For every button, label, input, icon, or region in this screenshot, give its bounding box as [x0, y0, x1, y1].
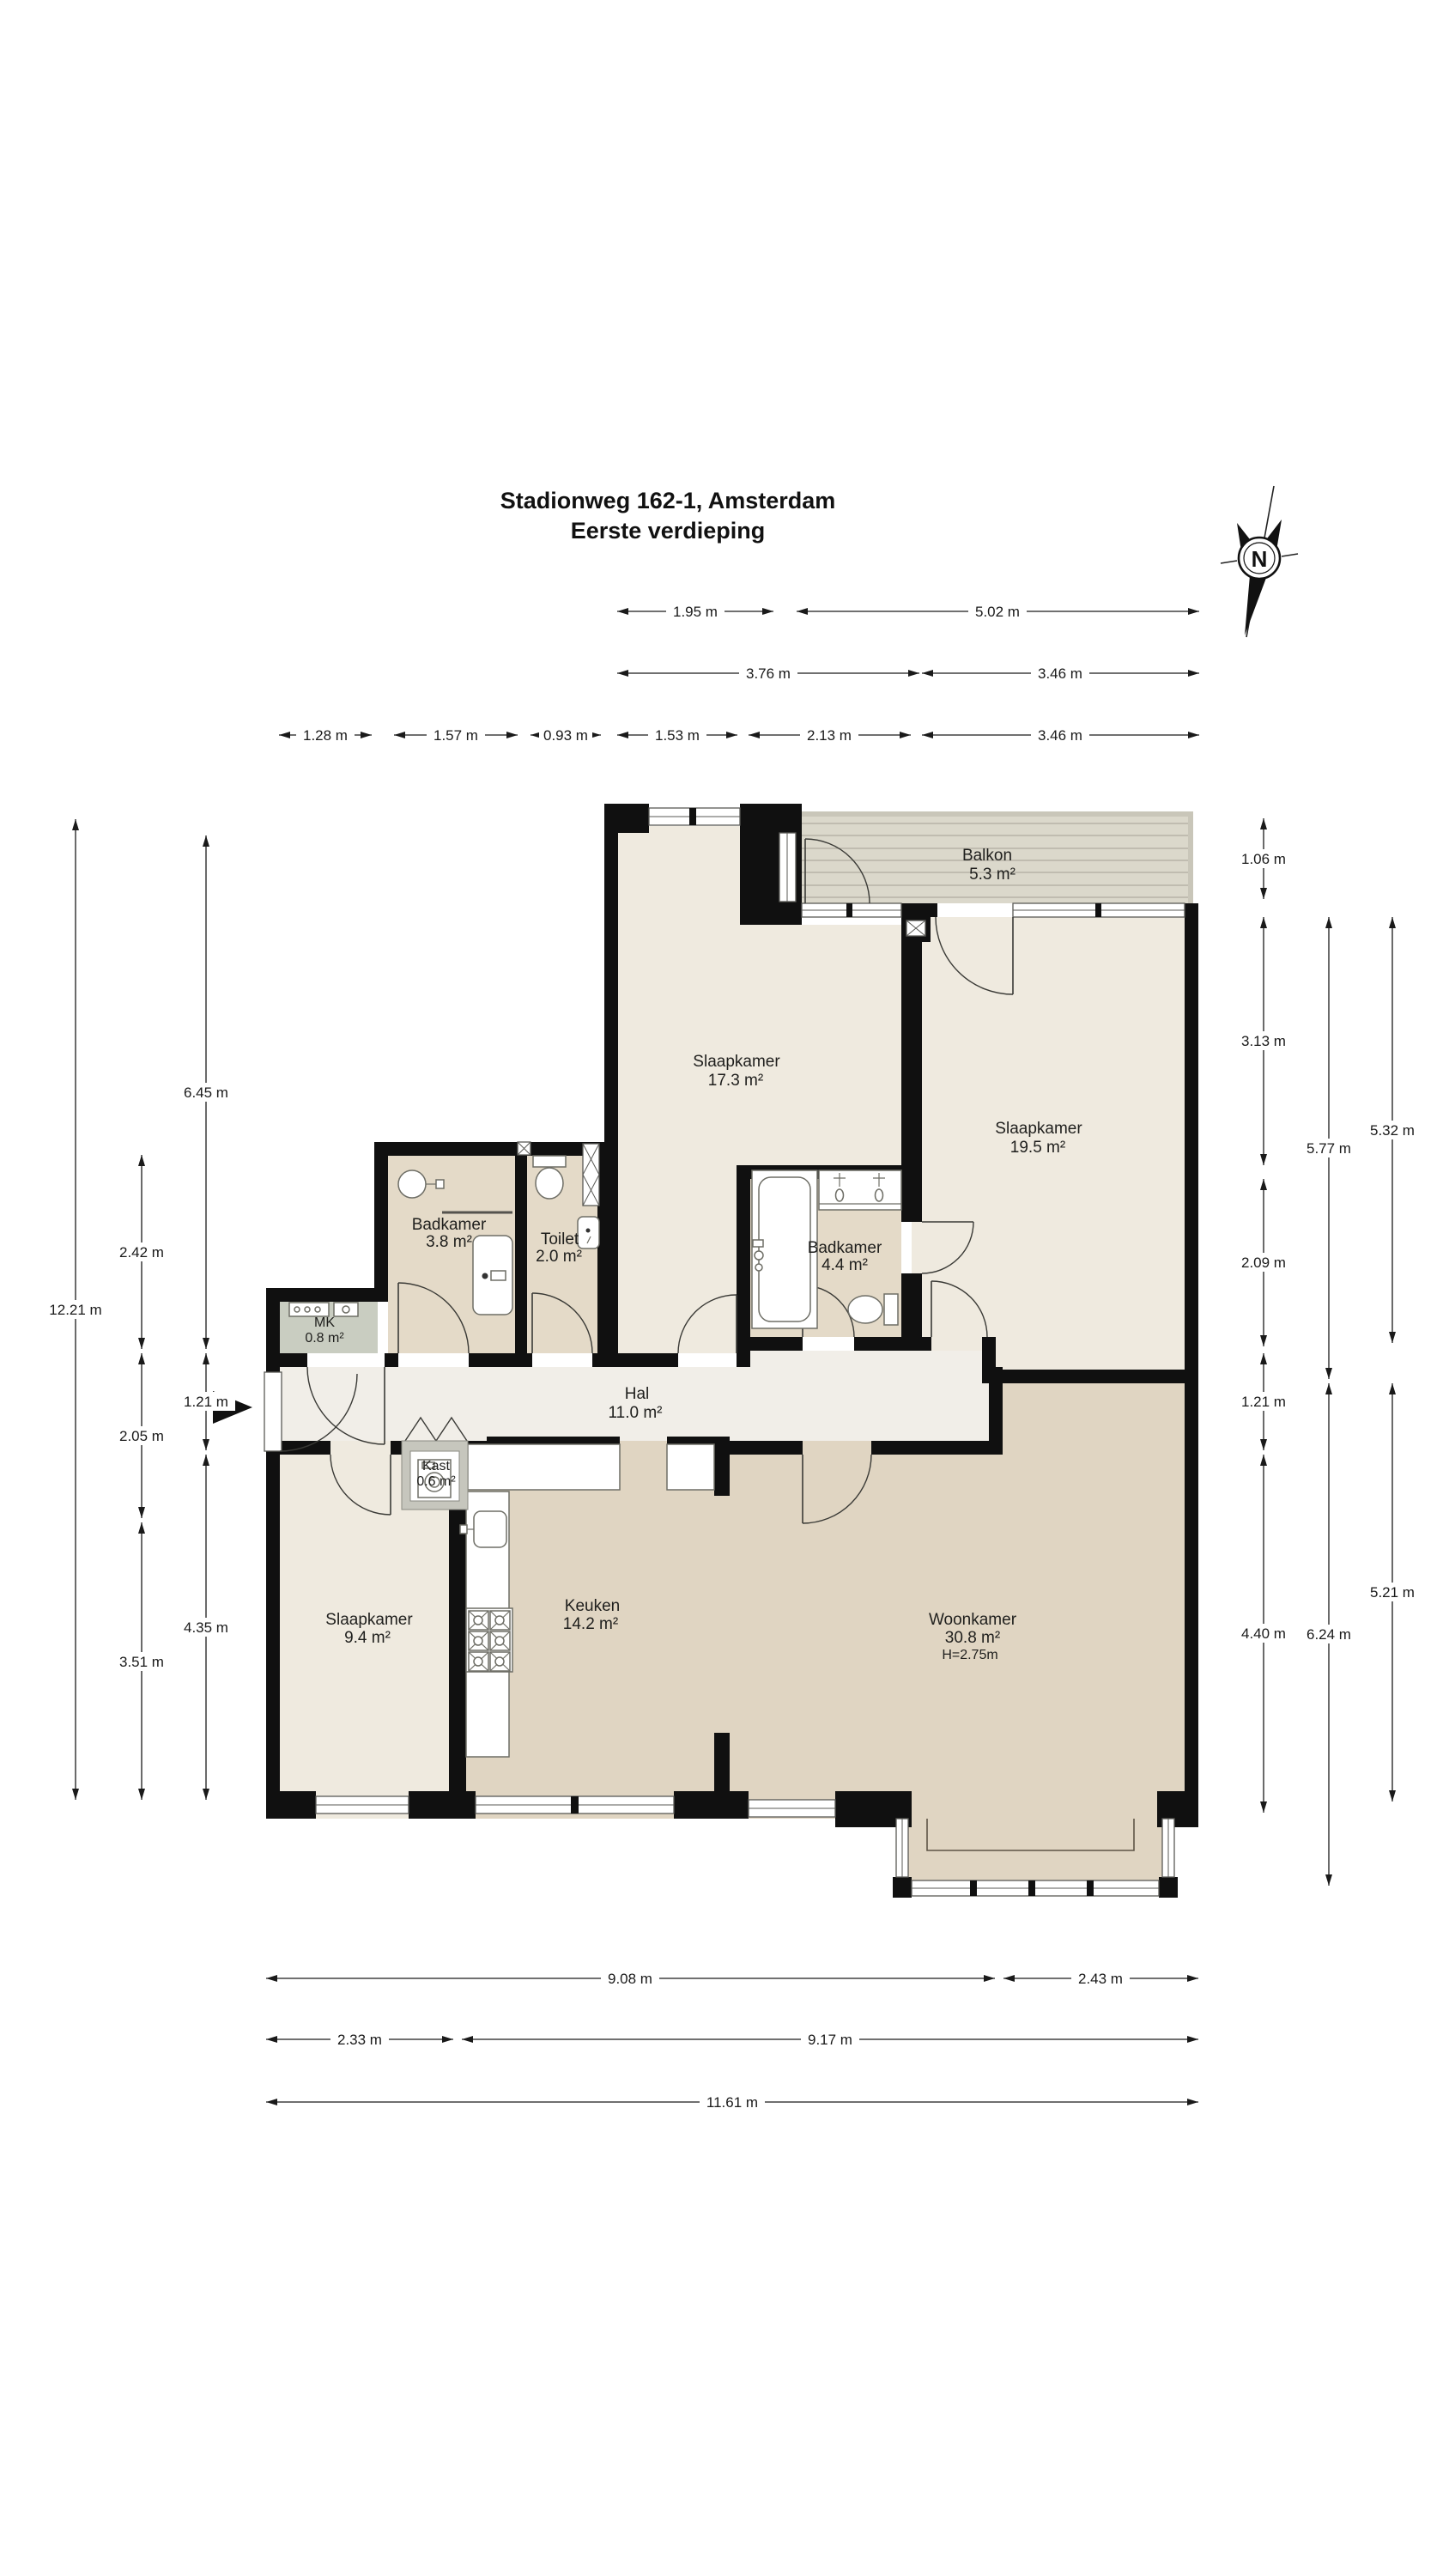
label-toilet-area: 2.0 m² [536, 1248, 582, 1266]
dim-right: 5.21 m [1363, 1383, 1422, 1801]
title-block: Stadionweg 162-1, Amsterdam Eerste verdi… [500, 488, 836, 544]
dim-top: 1.95 m [617, 602, 773, 621]
shower-icon [473, 1236, 512, 1315]
svg-text:6.45 m: 6.45 m [184, 1084, 228, 1101]
svg-text:0.93 m: 0.93 m [543, 727, 588, 744]
label-badkamer1-area: 3.8 m² [426, 1233, 472, 1251]
window-balkon-rail-right [1013, 903, 1185, 917]
compass-north-label: N [1252, 546, 1268, 572]
dim-left: 3.51 m [112, 1522, 171, 1800]
toilet-icon [533, 1156, 566, 1199]
dim-bottom: 2.33 m [266, 2030, 453, 2049]
page-subtitle: Eerste verdieping [571, 518, 766, 544]
label-mk-area: 0.8 m² [305, 1331, 344, 1346]
svg-text:6.24 m: 6.24 m [1307, 1626, 1351, 1643]
toilet2-icon [848, 1294, 898, 1325]
dim-left: 12.21 m [43, 819, 108, 1800]
dim-top: 2.13 m [749, 726, 911, 744]
dim-right: 1.06 m [1234, 818, 1293, 899]
dim-right: 1.21 m [1234, 1353, 1293, 1450]
label-slaapkamer2: Slaapkamer [995, 1120, 1082, 1138]
label-hal-area: 11.0 m² [608, 1404, 662, 1422]
svg-text:1.21 m: 1.21 m [184, 1394, 228, 1410]
dimensions-top: 1.95 m 5.02 m 3.76 m 3.46 m 1.28 m 1.57 … [279, 602, 1199, 744]
svg-text:2.09 m: 2.09 m [1241, 1255, 1286, 1271]
double-washbasin-icon [819, 1170, 901, 1210]
dim-top: 3.46 m [922, 664, 1199, 683]
window-slaapkamer1-balkon [779, 833, 796, 902]
svg-text:4.40 m: 4.40 m [1241, 1625, 1286, 1642]
svg-text:3.46 m: 3.46 m [1038, 727, 1082, 744]
page-title: Stadionweg 162-1, Amsterdam [500, 488, 836, 513]
label-badkamer1: Badkamer [412, 1216, 487, 1234]
dim-right: 5.77 m [1300, 917, 1358, 1379]
svg-text:2.43 m: 2.43 m [1078, 1971, 1123, 1987]
label-balkon-area: 5.3 m² [969, 866, 1016, 884]
dim-left: 4.35 m [177, 1455, 235, 1800]
window-slaapkamer3-bottom [316, 1796, 409, 1814]
label-hal: Hal [625, 1385, 650, 1403]
dim-left: 6.45 m [177, 835, 235, 1349]
svg-text:5.77 m: 5.77 m [1307, 1140, 1351, 1157]
svg-text:2.33 m: 2.33 m [337, 2032, 382, 2048]
dim-bottom: 11.61 m [266, 2093, 1198, 2111]
svg-text:1.53 m: 1.53 m [655, 727, 700, 744]
svg-text:3.46 m: 3.46 m [1038, 665, 1082, 682]
svg-text:5.21 m: 5.21 m [1370, 1584, 1415, 1601]
stove-icon [466, 1608, 512, 1672]
label-woonkamer-area: 30.8 m² [945, 1629, 1000, 1647]
dim-left: 2.42 m [112, 1155, 171, 1349]
dim-right: 2.09 m [1234, 1179, 1293, 1346]
dim-bottom: 9.08 m [266, 1969, 995, 1988]
svg-text:9.08 m: 9.08 m [608, 1971, 652, 1987]
svg-text:12.21 m: 12.21 m [49, 1302, 101, 1318]
label-badkamer2-area: 4.4 m² [822, 1256, 868, 1274]
dim-left: 2.05 m [112, 1353, 171, 1518]
dimensions-left: 12.21 m 2.42 m 2.05 m 3.51 m 6.45 m 1.21… [43, 819, 235, 1800]
balkon-right-rail [1188, 811, 1193, 917]
label-toilet: Toilet [541, 1230, 579, 1249]
compass-icon: N [1221, 486, 1298, 637]
dimensions-bottom: 9.08 m 2.43 m 2.33 m 9.17 m 11.61 m [266, 1969, 1198, 2111]
label-mk: MK [314, 1315, 335, 1330]
svg-text:2.13 m: 2.13 m [807, 727, 852, 744]
dim-bottom: 9.17 m [462, 2030, 1198, 2049]
label-slaapkamer1: Slaapkamer [693, 1053, 780, 1071]
svg-text:5.32 m: 5.32 m [1370, 1122, 1415, 1139]
label-keuken-area: 14.2 m² [563, 1615, 618, 1633]
svg-text:1.57 m: 1.57 m [433, 727, 478, 744]
svg-text:2.42 m: 2.42 m [119, 1244, 164, 1261]
svg-text:1.21 m: 1.21 m [1241, 1394, 1286, 1410]
svg-text:2.05 m: 2.05 m [119, 1428, 164, 1444]
toilet-washbasin-icon [578, 1217, 599, 1249]
label-slaapkamer3-area: 9.4 m² [344, 1629, 391, 1647]
svg-text:5.02 m: 5.02 m [975, 604, 1020, 620]
label-badkamer2: Badkamer [808, 1239, 882, 1257]
dim-right: 5.32 m [1363, 917, 1422, 1343]
window-keuken-bottom [476, 1796, 674, 1814]
window-bay-right [1162, 1819, 1174, 1877]
dim-right: 4.40 m [1234, 1455, 1293, 1813]
floorplan-canvas: Stadionweg 162-1, Amsterdam Eerste verdi… [0, 0, 1449, 2576]
dim-top: 1.53 m [617, 726, 737, 744]
dim-bottom: 2.43 m [1003, 1969, 1198, 1988]
svg-text:3.51 m: 3.51 m [119, 1654, 164, 1670]
dim-right: 3.13 m [1234, 917, 1293, 1165]
window-symbol-block [906, 920, 925, 936]
dim-top: 5.02 m [797, 602, 1199, 621]
label-kast: Kast [422, 1459, 451, 1473]
svg-text:4.35 m: 4.35 m [184, 1619, 228, 1636]
dim-top: 0.93 m [530, 726, 601, 744]
window-bay-left [896, 1819, 908, 1877]
dim-top: 1.57 m [394, 726, 518, 744]
label-woonkamer: Woonkamer [929, 1611, 1017, 1629]
window-balkon-rail-left [802, 903, 901, 917]
label-slaapkamer2-area: 19.5 m² [1010, 1139, 1065, 1157]
meter-box-icon [289, 1303, 358, 1316]
svg-text:3.76 m: 3.76 m [746, 665, 791, 682]
svg-text:9.17 m: 9.17 m [808, 2032, 852, 2048]
page: { "title": { "line1": "Stadionweg 162-1,… [0, 0, 1449, 2576]
dim-top: 3.76 m [617, 664, 919, 683]
label-keuken: Keuken [565, 1597, 620, 1615]
window-woonkamer-bottom [749, 1800, 835, 1817]
dim-left: 1.21 m [177, 1353, 235, 1450]
dim-top: 3.46 m [922, 726, 1199, 744]
svg-text:1.28 m: 1.28 m [303, 727, 348, 744]
dimensions-right: 1.06 m 3.13 m 2.09 m 1.21 m 4.40 m 5.77 … [1234, 818, 1422, 1886]
svg-text:1.95 m: 1.95 m [673, 604, 718, 620]
label-kast-area: 0.6 m² [416, 1474, 456, 1489]
window-slaapkamer1-top [649, 808, 740, 825]
label-woonkamer-height: H=2.75m [942, 1648, 997, 1662]
shaft-icon [583, 1144, 599, 1206]
svg-text:11.61 m: 11.61 m [706, 2094, 758, 2111]
window-bay-front [912, 1880, 1159, 1896]
label-slaapkamer1-area: 17.3 m² [708, 1072, 763, 1090]
svg-text:1.06 m: 1.06 m [1241, 851, 1286, 867]
label-balkon: Balkon [962, 847, 1012, 865]
dim-right: 6.24 m [1300, 1383, 1358, 1886]
vent-icon [518, 1142, 530, 1155]
label-slaapkamer3: Slaapkamer [325, 1611, 413, 1629]
dim-top: 1.28 m [279, 726, 372, 744]
balkon-top-rail [802, 811, 1193, 817]
woonkamer-bay-floor [900, 1797, 1169, 1883]
svg-text:3.13 m: 3.13 m [1241, 1033, 1286, 1049]
